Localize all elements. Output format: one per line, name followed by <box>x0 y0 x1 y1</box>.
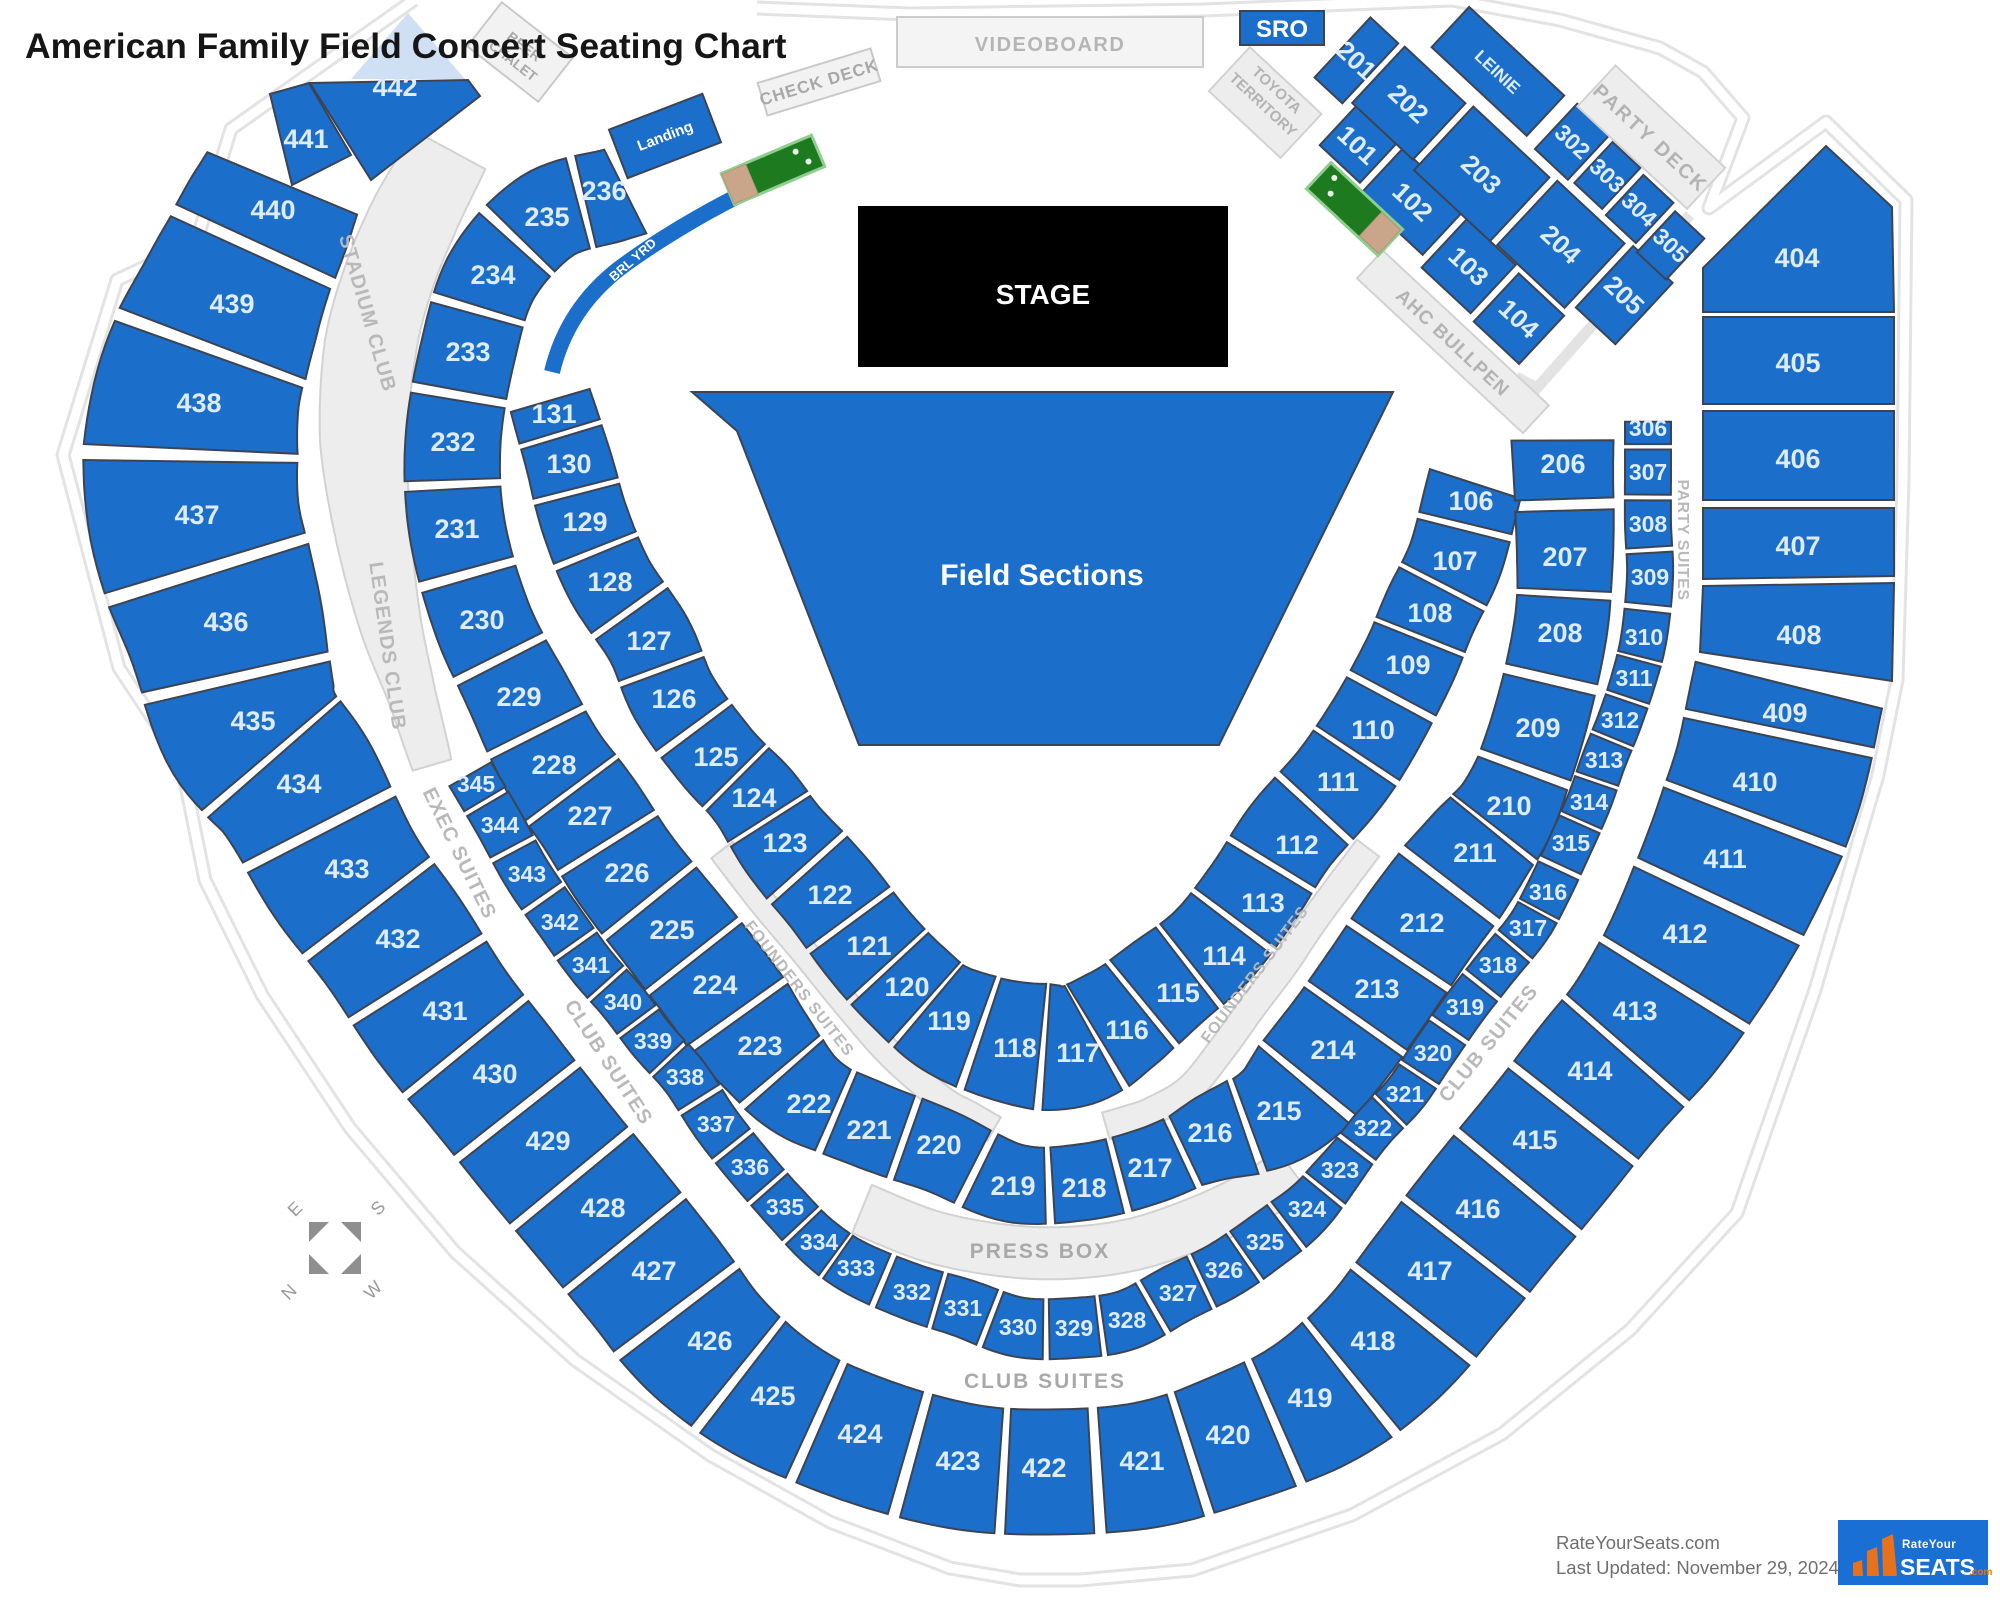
svg-text:338: 338 <box>666 1064 705 1090</box>
svg-text:212: 212 <box>1399 908 1444 938</box>
svg-text:221: 221 <box>846 1115 891 1145</box>
svg-text:130: 130 <box>546 449 591 479</box>
svg-text:320: 320 <box>1414 1040 1452 1066</box>
svg-text:404: 404 <box>1774 243 1819 273</box>
svg-text:322: 322 <box>1354 1115 1392 1141</box>
svg-text:106: 106 <box>1448 486 1493 516</box>
svg-text:334: 334 <box>800 1229 839 1255</box>
svg-text:413: 413 <box>1612 996 1657 1026</box>
svg-text:116: 116 <box>1105 1015 1149 1045</box>
svg-text:329: 329 <box>1055 1315 1093 1341</box>
svg-text:427: 427 <box>631 1256 676 1286</box>
svg-text:410: 410 <box>1732 767 1777 797</box>
svg-text:439: 439 <box>209 289 254 319</box>
svg-text:222: 222 <box>786 1089 831 1119</box>
svg-text:325: 325 <box>1246 1229 1285 1255</box>
svg-text:317: 317 <box>1509 915 1547 941</box>
svg-text:408: 408 <box>1776 620 1821 650</box>
svg-text:313: 313 <box>1585 747 1623 773</box>
svg-text:426: 426 <box>687 1326 732 1356</box>
svg-text:321: 321 <box>1386 1081 1425 1107</box>
svg-text:311: 311 <box>1615 665 1652 691</box>
svg-text:434: 434 <box>276 769 321 799</box>
svg-text:335: 335 <box>766 1194 805 1220</box>
svg-text:226: 226 <box>604 858 649 888</box>
svg-text:441: 441 <box>283 124 328 154</box>
svg-text:127: 127 <box>626 626 671 656</box>
svg-text:American Family Field Concert: American Family Field Concert Seating Ch… <box>25 26 787 66</box>
svg-text:341: 341 <box>572 952 611 978</box>
svg-text:438: 438 <box>176 388 221 418</box>
svg-text:419: 419 <box>1287 1383 1332 1413</box>
svg-text:418: 418 <box>1350 1326 1395 1356</box>
svg-text:344: 344 <box>481 812 520 838</box>
svg-text:112: 112 <box>1275 830 1319 860</box>
svg-text:232: 232 <box>430 427 475 457</box>
svg-text:340: 340 <box>604 989 642 1015</box>
svg-text:236: 236 <box>581 176 626 206</box>
svg-text:308: 308 <box>1629 511 1668 537</box>
svg-text:312: 312 <box>1601 707 1639 733</box>
svg-text:Last Updated: November 29, 202: Last Updated: November 29, 2024 <box>1556 1557 1839 1578</box>
svg-text:316: 316 <box>1529 879 1567 905</box>
svg-text:128: 128 <box>587 567 632 597</box>
svg-text:235: 235 <box>524 202 569 232</box>
svg-text:216: 216 <box>1187 1118 1232 1148</box>
svg-text:420: 420 <box>1205 1420 1250 1450</box>
svg-text:336: 336 <box>731 1154 769 1180</box>
svg-text:224: 224 <box>692 970 737 1000</box>
svg-text:435: 435 <box>230 706 275 736</box>
svg-text:121: 121 <box>846 931 891 961</box>
svg-text:314: 314 <box>1570 789 1609 815</box>
svg-text:234: 234 <box>470 260 515 290</box>
svg-text:119: 119 <box>927 1006 971 1036</box>
svg-text:307: 307 <box>1629 459 1667 485</box>
svg-text:STAGE: STAGE <box>996 279 1090 310</box>
svg-text:415: 415 <box>1512 1125 1557 1155</box>
svg-text:.com: .com <box>1969 1567 1992 1578</box>
svg-text:437: 437 <box>174 500 219 530</box>
svg-text:343: 343 <box>508 861 546 887</box>
svg-text:207: 207 <box>1542 542 1587 572</box>
svg-text:409: 409 <box>1762 698 1807 728</box>
svg-text:315: 315 <box>1552 830 1591 856</box>
svg-text:210: 210 <box>1486 791 1531 821</box>
svg-text:122: 122 <box>807 880 852 910</box>
svg-text:414: 414 <box>1567 1056 1612 1086</box>
svg-text:RateYourSeats.com: RateYourSeats.com <box>1556 1532 1720 1553</box>
svg-text:111: 111 <box>1317 767 1359 797</box>
svg-text:333: 333 <box>837 1255 875 1281</box>
svg-text:433: 433 <box>324 854 369 884</box>
svg-text:330: 330 <box>999 1314 1037 1340</box>
svg-text:214: 214 <box>1310 1035 1355 1065</box>
svg-text:230: 230 <box>459 605 504 635</box>
svg-text:411: 411 <box>1703 844 1747 874</box>
svg-text:326: 326 <box>1205 1257 1243 1283</box>
svg-text:217: 217 <box>1127 1153 1172 1183</box>
svg-text:227: 227 <box>567 801 612 831</box>
svg-text:RateYour: RateYour <box>1902 1539 1956 1551</box>
svg-text:430: 430 <box>472 1059 517 1089</box>
svg-text:428: 428 <box>580 1193 625 1223</box>
svg-text:118: 118 <box>993 1033 1037 1063</box>
svg-text:120: 120 <box>884 972 929 1002</box>
svg-text:318: 318 <box>1479 952 1518 978</box>
svg-text:228: 228 <box>531 750 576 780</box>
svg-text:324: 324 <box>1288 1196 1327 1222</box>
svg-text:440: 440 <box>250 195 295 225</box>
svg-text:124: 124 <box>731 783 776 813</box>
svg-text:PRESS BOX: PRESS BOX <box>970 1240 1111 1263</box>
svg-text:323: 323 <box>1321 1157 1359 1183</box>
svg-text:114: 114 <box>1202 941 1246 971</box>
svg-text:319: 319 <box>1446 994 1484 1020</box>
svg-text:407: 407 <box>1775 531 1820 561</box>
svg-text:218: 218 <box>1061 1173 1106 1203</box>
svg-text:117: 117 <box>1056 1038 1100 1068</box>
svg-text:Field Sections: Field Sections <box>940 559 1143 592</box>
svg-text:110: 110 <box>1351 715 1395 745</box>
svg-text:339: 339 <box>634 1028 672 1054</box>
svg-text:423: 423 <box>935 1446 980 1476</box>
svg-text:CLUB SUITES: CLUB SUITES <box>964 1370 1126 1393</box>
svg-text:123: 123 <box>762 828 807 858</box>
svg-text:223: 223 <box>737 1031 782 1061</box>
svg-text:337: 337 <box>697 1111 735 1137</box>
svg-text:231: 231 <box>434 514 479 544</box>
svg-text:220: 220 <box>916 1130 961 1160</box>
svg-text:421: 421 <box>1119 1446 1164 1476</box>
svg-text:328: 328 <box>1108 1307 1147 1333</box>
svg-text:211: 211 <box>1453 838 1497 868</box>
svg-text:108: 108 <box>1407 598 1452 628</box>
svg-text:208: 208 <box>1537 618 1582 648</box>
svg-text:412: 412 <box>1662 919 1707 949</box>
svg-text:SEATS: SEATS <box>1900 1554 1975 1580</box>
svg-text:327: 327 <box>1159 1280 1197 1306</box>
svg-text:109: 109 <box>1385 650 1430 680</box>
svg-text:126: 126 <box>651 684 696 714</box>
svg-text:206: 206 <box>1540 449 1585 479</box>
svg-text:436: 436 <box>203 607 248 637</box>
svg-text:424: 424 <box>837 1419 882 1449</box>
svg-text:233: 233 <box>445 337 490 367</box>
svg-text:417: 417 <box>1407 1256 1452 1286</box>
svg-text:345: 345 <box>457 771 496 797</box>
svg-text:416: 416 <box>1455 1194 1500 1224</box>
svg-text:342: 342 <box>541 909 579 935</box>
svg-text:309: 309 <box>1631 564 1669 590</box>
svg-text:209: 209 <box>1515 713 1560 743</box>
svg-text:431: 431 <box>422 996 467 1026</box>
svg-text:331: 331 <box>944 1295 983 1321</box>
svg-text:422: 422 <box>1021 1453 1066 1483</box>
svg-text:310: 310 <box>1625 624 1663 650</box>
svg-text:PARTY SUITES: PARTY SUITES <box>1674 480 1691 601</box>
svg-text:213: 213 <box>1354 974 1399 1004</box>
svg-text:129: 129 <box>562 507 607 537</box>
svg-text:332: 332 <box>893 1279 931 1305</box>
svg-text:405: 405 <box>1775 348 1820 378</box>
svg-text:125: 125 <box>693 742 738 772</box>
svg-text:115: 115 <box>1156 978 1200 1008</box>
svg-text:306: 306 <box>1629 415 1667 441</box>
svg-text:SRO: SRO <box>1256 16 1308 43</box>
svg-text:113: 113 <box>1241 888 1285 918</box>
svg-text:VIDEOBOARD: VIDEOBOARD <box>975 34 1126 56</box>
svg-text:219: 219 <box>990 1171 1035 1201</box>
svg-text:425: 425 <box>750 1381 795 1411</box>
svg-text:225: 225 <box>649 915 694 945</box>
svg-text:406: 406 <box>1775 444 1820 474</box>
svg-text:107: 107 <box>1432 546 1477 576</box>
svg-text:429: 429 <box>525 1126 570 1156</box>
svg-text:215: 215 <box>1256 1096 1301 1126</box>
svg-text:229: 229 <box>496 682 541 712</box>
svg-text:432: 432 <box>375 924 420 954</box>
svg-text:131: 131 <box>531 399 576 429</box>
